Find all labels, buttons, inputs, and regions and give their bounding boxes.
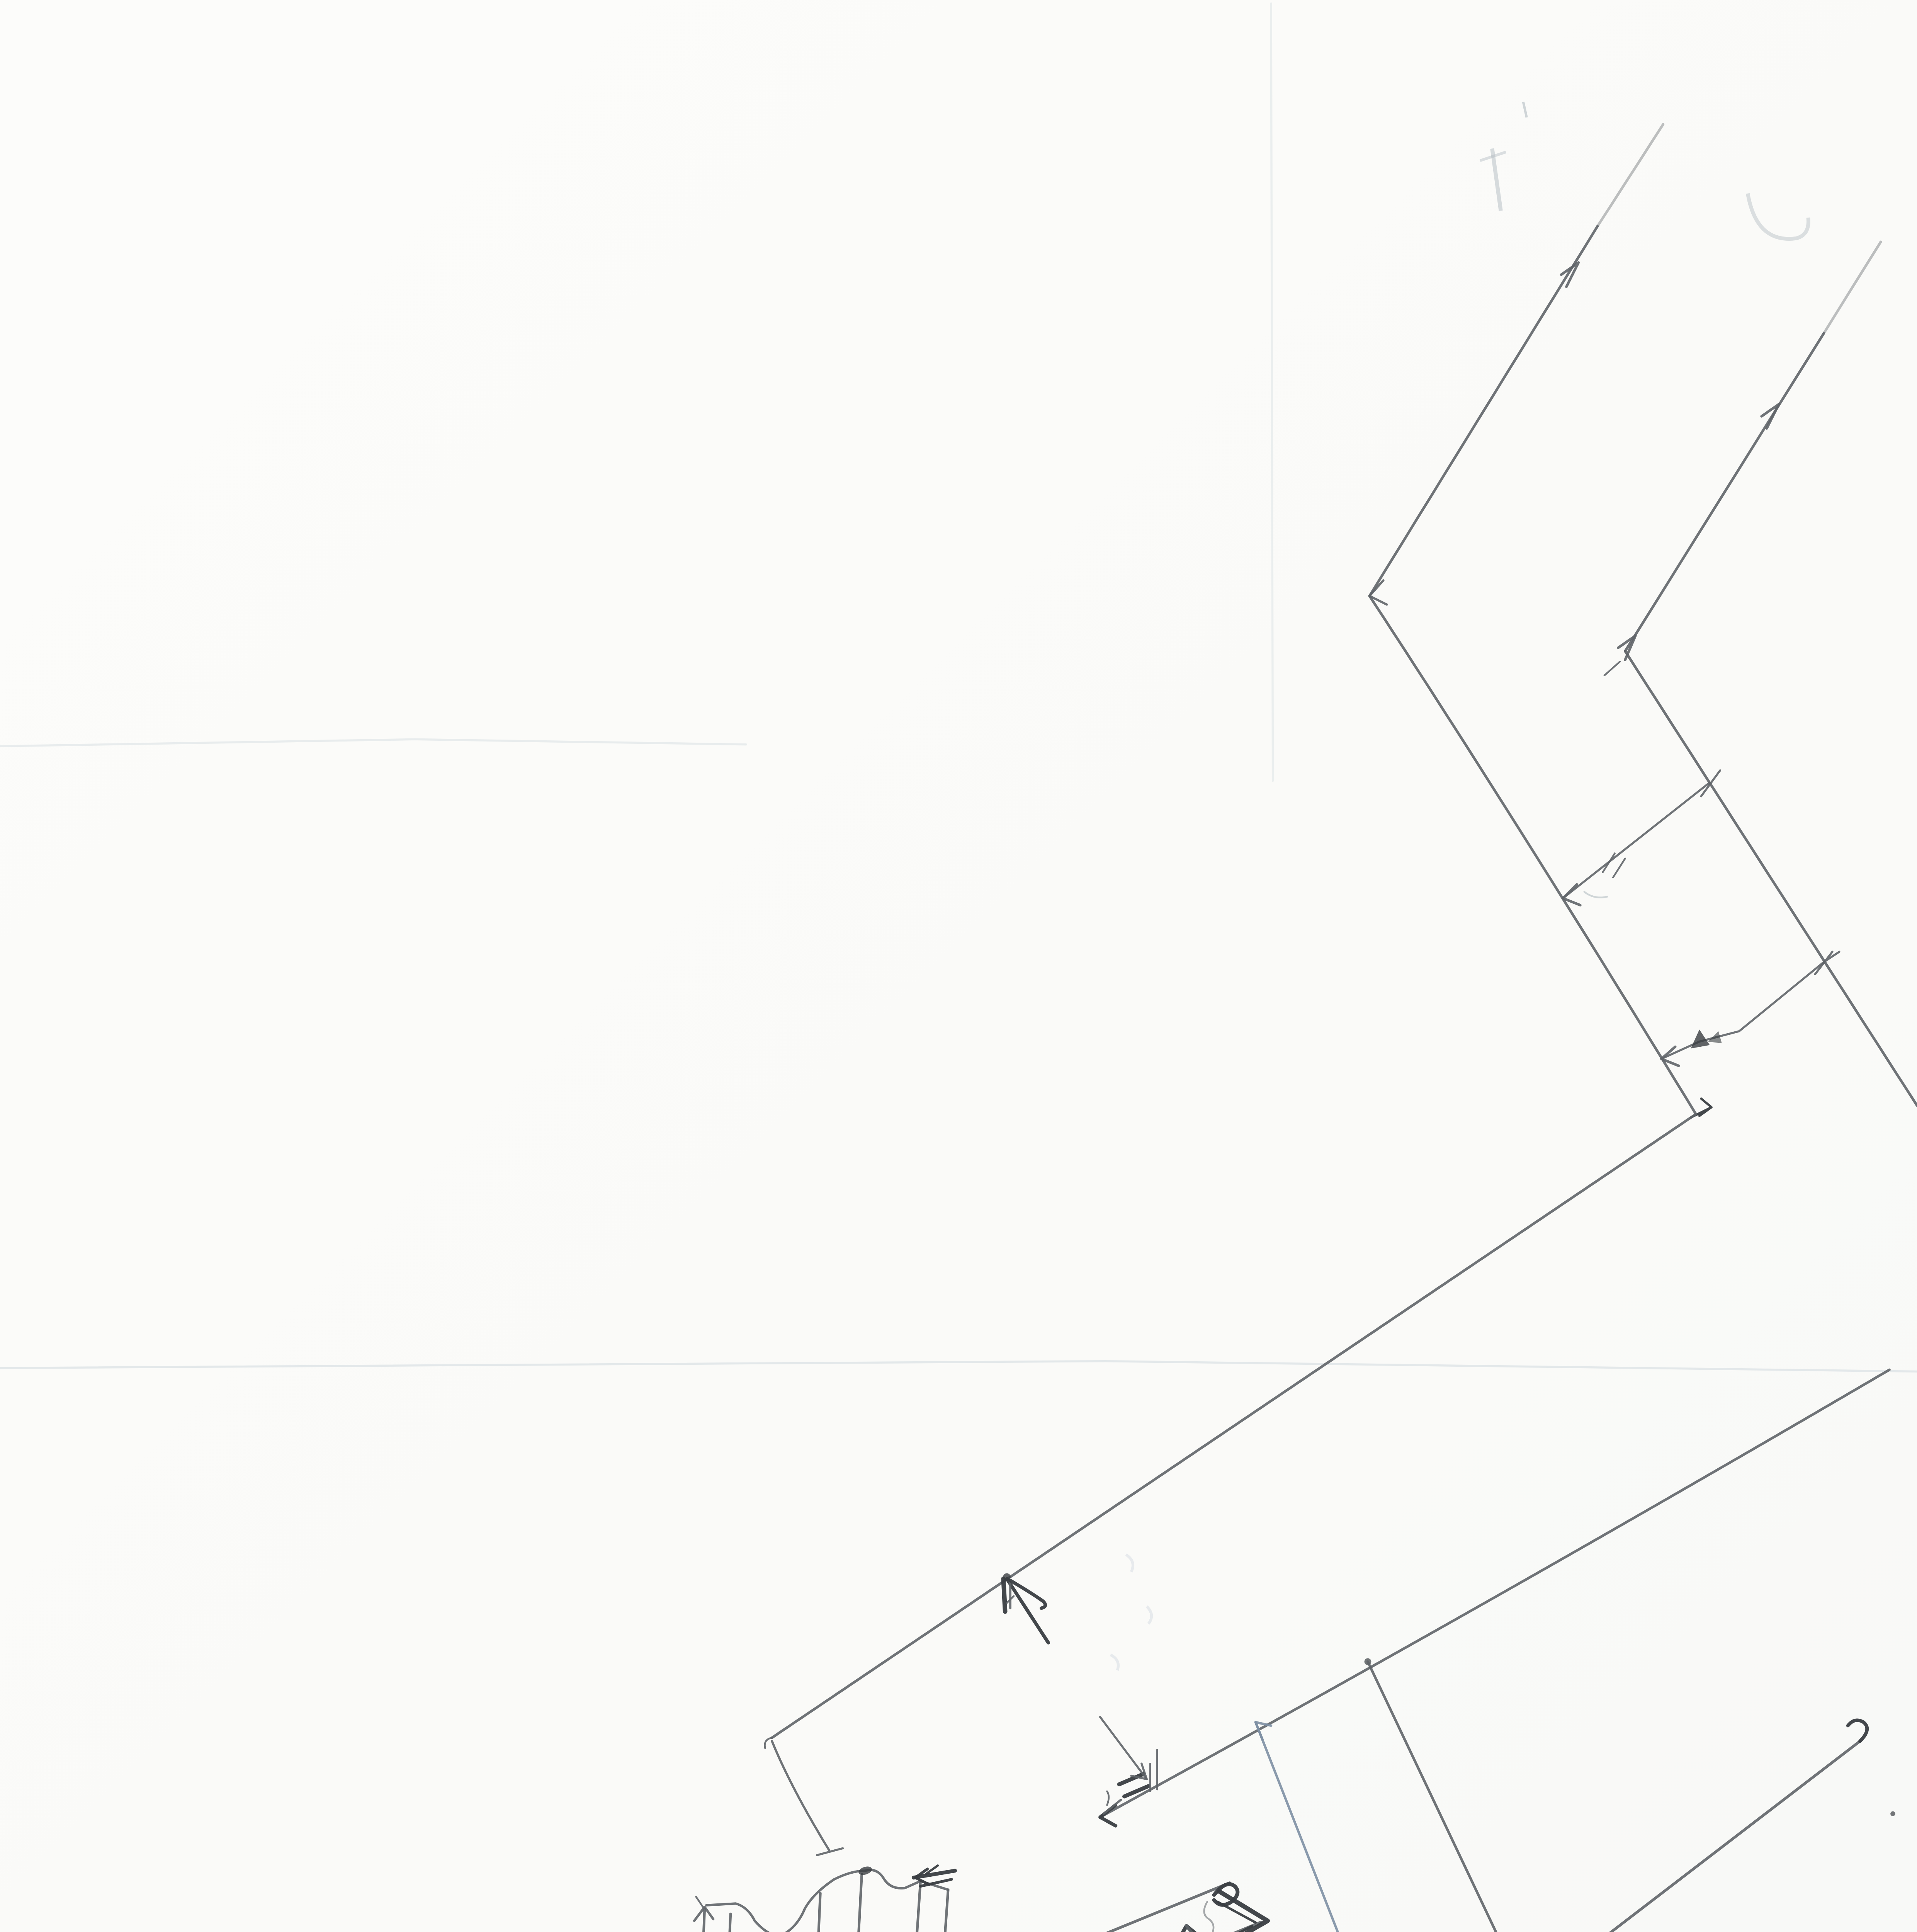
wall-left-flank: [1370, 596, 1696, 1114]
tick-northeast-wall-base: [1604, 662, 1620, 675]
corridor-upper-end-curl: [765, 1738, 772, 1748]
corridor-lower-tip-arrowhead-icon: [1100, 1805, 1116, 1826]
corridor-lower-tip-hook: [1107, 1791, 1108, 1805]
wall-trace-two: [561, 1658, 1867, 1932]
cross-wall-upper: [1563, 782, 1710, 898]
arrowhead-on-northeast-wall-icon: [1762, 404, 1779, 429]
spur-wall-vertical: [1368, 1662, 1526, 1932]
pointer-line-left: [1256, 1722, 1456, 1932]
wall-line-northeast: [1625, 333, 1824, 651]
wall-line-northwest-faded-tip: [1597, 124, 1663, 226]
staircase-structure: [585, 1865, 1237, 1932]
staircase-teeth: [641, 1874, 948, 1932]
flag-mark-secondary: [1708, 1031, 1722, 1043]
wall-right-flank: [1625, 651, 1917, 1105]
tooth-3: [724, 1914, 731, 1932]
annotation-pointer-lines: [1186, 1722, 1456, 1932]
up-arrow-fletching-bold: [1003, 1579, 1005, 1612]
pointer-line-right: [1186, 1926, 1439, 1932]
corridor-upper-end-drop: [772, 1741, 829, 1850]
tick-cross-wall-lower-end: [1815, 952, 1839, 974]
eraser-squiggle: [1584, 891, 1608, 898]
floor-plan-sketch: ces deux tracés de mur sont-ils bien att…: [0, 0, 1917, 1932]
stray-tick: [1523, 102, 1527, 117]
spur-wall-hook-head-icon: [1848, 1720, 1867, 1741]
wall-line-northeast-faded-tip: [1824, 242, 1881, 333]
corridor-walls: [765, 1114, 1890, 1855]
fold-crease-vertical: [1271, 3, 1273, 781]
staircase-roof-line: [706, 1870, 948, 1932]
spur-wall-diagonal: [1527, 1741, 1860, 1932]
smudge-curve: [1748, 194, 1808, 239]
tooth-2-top-tick: [696, 1896, 703, 1907]
ink-bleed-marks: [1110, 1554, 1151, 1670]
scanned-paper-sheet: ces deux tracés de mur sont-ils bien att…: [0, 0, 1917, 1932]
right-arrow-head-icon: [1211, 1891, 1268, 1932]
cross-wall-lower: [1661, 962, 1824, 1059]
fold-crease-middle: [0, 1361, 1917, 1372]
paper-artifacts: [0, 3, 1917, 1816]
corridor-upper-wall: [772, 1114, 1696, 1738]
baseline-head-squiggle: [1204, 1902, 1213, 1932]
fold-crease-upper: [0, 739, 746, 746]
up-arrow-shaft: [1007, 1579, 1048, 1643]
tooth-8: [941, 1890, 948, 1932]
roof-peak-blob: [858, 1865, 873, 1877]
tooth-5: [813, 1893, 820, 1932]
tooth-6: [853, 1874, 862, 1932]
down-arrow-shaft: [1100, 1717, 1147, 1779]
wall-line-northwest: [1370, 226, 1597, 596]
pointer-line-left-arrowhead-icon: [1256, 1722, 1271, 1740]
smudge-streak: [1492, 148, 1501, 211]
tooth-7: [912, 1881, 920, 1932]
pencil-speck: [1890, 1811, 1895, 1816]
wall-complex-upper-right: [1370, 124, 1917, 1117]
